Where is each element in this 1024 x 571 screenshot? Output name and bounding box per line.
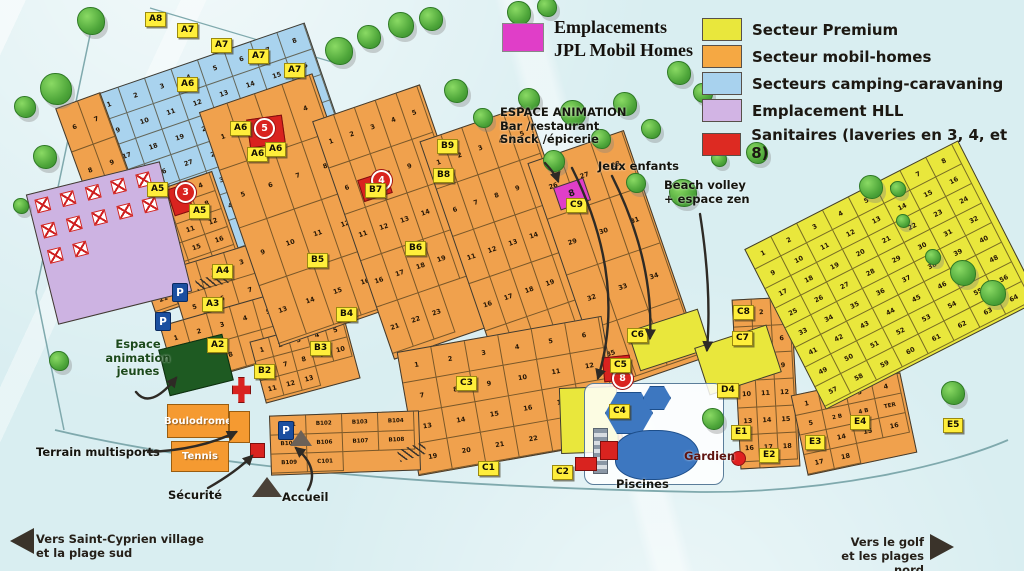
parking-icon: P <box>172 283 188 302</box>
hll-chalet-icon <box>66 215 83 232</box>
tree-icon <box>325 37 353 65</box>
gardien-label: Gardien <box>684 450 735 464</box>
sector-badge-A7: A7 <box>211 38 232 53</box>
hll-chalet-icon <box>110 178 127 195</box>
plot: 22 <box>514 421 553 457</box>
plot: 18 <box>778 432 798 460</box>
tree-icon <box>419 7 443 31</box>
tree-icon <box>925 249 941 265</box>
espace-animation-label: ESPACE ANIMATIONBar /restaurantSnack /ép… <box>500 106 627 147</box>
title-line2: JPL Mobil Homes <box>554 39 693 62</box>
espace-animation-jeunes-label: Espaceanimationjeunes <box>100 338 176 379</box>
legend-row: Secteurs camping-caravaning <box>702 72 1024 95</box>
sector-badge-A5: A5 <box>147 182 168 197</box>
sector-badge-C3: C3 <box>456 376 477 391</box>
tree-icon <box>859 175 883 199</box>
plot: B104 <box>378 412 415 432</box>
tree-icon <box>357 25 381 49</box>
sign-ne-line2: et les plages nord <box>836 550 924 571</box>
sector-badge-E4: E4 <box>850 415 870 430</box>
hll-chalet-icon <box>41 222 58 239</box>
legend: Secteur PremiumSecteur mobil-homesSecteu… <box>702 18 1024 166</box>
sector-badge-A7: A7 <box>248 49 269 64</box>
plot: B106 <box>307 433 344 453</box>
legend-row: Secteur mobil-homes <box>702 45 1024 68</box>
plot: 16 <box>879 413 910 438</box>
sector-badge-B9: B9 <box>437 139 458 154</box>
tree-icon <box>941 381 965 405</box>
title-line1: Emplacements <box>554 16 693 39</box>
tree-icon <box>890 181 906 197</box>
piscines-area <box>584 383 724 485</box>
sector-badge-A2: A2 <box>207 338 228 353</box>
sector-badge-A7: A7 <box>284 63 305 78</box>
tree-icon <box>896 214 910 228</box>
multisports-court <box>229 411 250 443</box>
jeux-enfants-label: Jeux enfants <box>598 160 679 174</box>
legend-row: Sanitaires (laveries en 3, 4, et 8) <box>702 126 1024 162</box>
sector-badge-C1: C1 <box>478 461 499 476</box>
sector-badge-C6: C6 <box>627 328 648 343</box>
sanitaire-building-icon <box>232 377 251 403</box>
tree-icon <box>77 7 105 35</box>
legend-label: Secteur Premium <box>752 21 898 39</box>
tree-icon <box>33 145 57 169</box>
tree-icon <box>473 108 493 128</box>
legend-swatch <box>702 45 742 68</box>
tree-icon <box>49 351 69 371</box>
plot: B109 <box>271 453 308 473</box>
pool-entry-icon <box>575 457 597 471</box>
map-title: Emplacements JPL Mobil Homes <box>502 16 693 61</box>
sector-badge-A8: A8 <box>145 12 166 27</box>
sector-badge-B8: B8 <box>433 168 454 183</box>
sector-badge-B2: B2 <box>254 364 275 379</box>
sign-ne-line1: Vers le golf <box>836 536 924 550</box>
sector-badge-E5: E5 <box>943 418 963 433</box>
legend-row: Secteur Premium <box>702 18 1024 41</box>
tree-icon <box>667 61 691 85</box>
plot: C101 <box>307 452 344 472</box>
hll-chalet-icon <box>60 190 77 207</box>
sector-badge-C8: C8 <box>733 305 754 320</box>
terrain-multisports-label: Terrain multisports <box>36 446 160 460</box>
sector-badge-B4: B4 <box>336 307 357 322</box>
hll-chalet-icon <box>72 241 89 258</box>
beach-volley-label: Beach volley+ espace zen <box>664 179 750 206</box>
tree-icon <box>13 198 29 214</box>
sanitaire-number-5: 5 <box>254 118 275 139</box>
plot: 17 <box>804 449 835 474</box>
hll-chalet-icon <box>34 196 51 213</box>
sector-badge-C9: C9 <box>566 198 587 213</box>
legend-label: Secteur mobil-homes <box>752 48 931 66</box>
legend-swatch <box>702 133 741 156</box>
plot: 13 <box>298 366 322 390</box>
legend-swatch <box>702 18 742 41</box>
sign-sw-line1: Vers Saint-Cyprien village <box>36 533 204 547</box>
legend-label: Secteurs camping-caravaning <box>752 75 1003 93</box>
piscines-label: Piscines <box>616 478 669 492</box>
sector-badge-A7: A7 <box>177 23 198 38</box>
sector-badge-E2: E2 <box>759 448 779 463</box>
tree-icon <box>40 73 72 105</box>
accueil-label: Accueil <box>282 491 328 505</box>
plot: 10 <box>329 337 353 361</box>
reception-marker <box>290 430 312 446</box>
sector-badge-A6: A6 <box>177 77 198 92</box>
legend-label: Sanitaires (laveries en 3, 4, et 8) <box>751 126 1024 162</box>
tree-icon <box>950 260 976 286</box>
sector-badge-D4: D4 <box>717 383 739 398</box>
arrow-right-icon <box>930 534 954 560</box>
legend-swatch <box>702 99 742 122</box>
boulodrome-area-label: Boulodrome <box>168 405 228 437</box>
legend-row: Emplacement HLL <box>702 99 1024 122</box>
sector-badge-C7: C7 <box>732 331 753 346</box>
sector-badge-E3: E3 <box>805 435 825 450</box>
securite-label: Sécurité <box>168 489 222 503</box>
tree-icon <box>14 96 36 118</box>
sector-badge-B6: B6 <box>405 241 426 256</box>
tree-icon <box>626 173 646 193</box>
hll-chalet-icon <box>47 247 64 264</box>
sector-badge-A3: A3 <box>202 297 223 312</box>
sector-badge-A6: A6 <box>230 121 251 136</box>
hll-chalet-icon <box>91 209 108 226</box>
tree-icon <box>388 12 414 38</box>
sector-badge-B7: B7 <box>365 183 386 198</box>
sector-badge-C2: C2 <box>552 465 573 480</box>
accueil-marker <box>252 477 282 497</box>
sign-northeast: Vers le golf et les plages nord <box>836 536 924 571</box>
tree-icon <box>543 150 565 172</box>
sign-sw-line2: et la plage sud <box>36 547 204 561</box>
tree-icon <box>537 0 557 17</box>
hll-chalet-icon <box>85 184 102 201</box>
plot: 14 <box>757 406 777 434</box>
sector-badge-B5: B5 <box>307 253 328 268</box>
tennis-area-label: Tennis <box>172 442 228 471</box>
pool-building-icon <box>600 441 618 460</box>
hll-chalet-icon <box>142 196 159 213</box>
sector-badge-A4: A4 <box>212 264 233 279</box>
parking-icon: P <box>155 312 171 331</box>
plot: 21 <box>481 427 520 463</box>
hll-chalet-icon <box>116 203 133 220</box>
plot: B107 <box>343 432 380 452</box>
tennis-area: Tennis <box>171 441 229 472</box>
campsite-map: 1234567891011121314151617181920212223242… <box>0 0 1024 571</box>
jpl-mobil-home-swatch <box>502 23 544 52</box>
plot: B103 <box>342 413 379 433</box>
tree-icon <box>980 280 1006 306</box>
securite-post-icon <box>250 443 265 458</box>
sector-badge-A5: A5 <box>189 204 210 219</box>
plot: 18 <box>831 444 862 469</box>
sector-badge-E1: E1 <box>731 425 751 440</box>
sector-badge-C5: C5 <box>610 358 631 373</box>
sanitaire-number-3: 3 <box>175 182 196 203</box>
legend-swatch <box>702 72 742 95</box>
boulodrome-area: Boulodrome <box>167 404 229 438</box>
tree-icon <box>641 119 661 139</box>
sector-badge-B3: B3 <box>310 341 331 356</box>
tree-icon <box>444 79 468 103</box>
arrow-left-icon <box>10 528 34 554</box>
sector-badge-A6: A6 <box>265 142 286 157</box>
plot: 2 <box>752 299 772 327</box>
tree-icon <box>702 408 724 430</box>
legend-label: Emplacement HLL <box>752 102 904 120</box>
sector-badge-C4: C4 <box>609 404 630 419</box>
sign-southwest: Vers Saint-Cyprien village et la plage s… <box>36 533 204 561</box>
plot: 11 <box>756 380 776 408</box>
